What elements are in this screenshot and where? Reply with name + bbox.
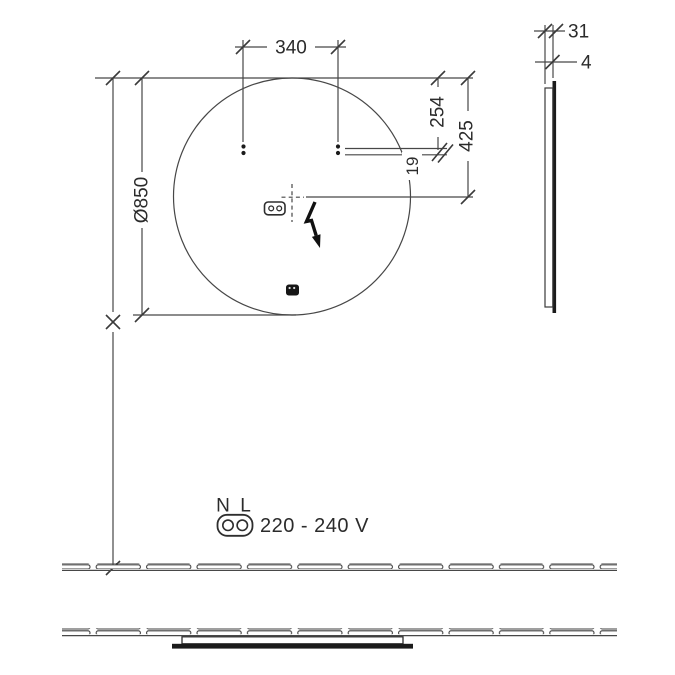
mounting-point-right: [336, 144, 340, 155]
voltage-label: 220 - 240 V: [260, 515, 369, 537]
top-view-body: [182, 637, 403, 644]
mirror-top-view: [172, 637, 413, 649]
side-view-body: [545, 88, 553, 307]
socket-icon: [218, 515, 253, 536]
top-view-glass: [172, 644, 413, 649]
dimension-cable-top-offset: 425: [306, 71, 478, 204]
lightning-bolt-icon: [307, 202, 321, 248]
diameter-label: Ø850: [132, 177, 153, 223]
technical-drawing-page: Ø850 340: [0, 0, 675, 675]
side-view: 31 4: [534, 22, 592, 313]
front-view: Ø850 340: [95, 36, 478, 575]
bracket-gap-label: 19: [403, 157, 422, 176]
dimension-hole-spacing: 340: [235, 36, 346, 142]
mirror-dimension-drawing: Ø850 340: [0, 0, 675, 675]
variable-height-marker: [103, 312, 123, 332]
line-label: L: [240, 496, 251, 517]
glass-thickness-label: 4: [581, 53, 592, 74]
mounting-point-left: [241, 144, 245, 155]
wall-section-upper: [62, 563, 617, 570]
dimension-glass-thickness: 4: [535, 53, 592, 74]
cable-top-offset-label: 425: [457, 120, 478, 152]
power-legend: N L 220 - 240 V: [216, 496, 369, 537]
sensor-switch: [286, 285, 299, 296]
neutral-label: N: [216, 496, 230, 517]
hole-spacing-label: 340: [275, 38, 307, 59]
dimension-diameter: Ø850: [130, 71, 153, 322]
dimension-depth: 31: [534, 22, 589, 43]
wall-section-lower: [62, 628, 617, 635]
hole-top-offset-label: 254: [428, 96, 449, 128]
dimension-hole-top-offset: 254: [426, 71, 449, 150]
dimension-bracket-gap: 19: [402, 152, 422, 180]
depth-label: 31: [568, 22, 589, 43]
junction-box-icon: [265, 202, 286, 215]
